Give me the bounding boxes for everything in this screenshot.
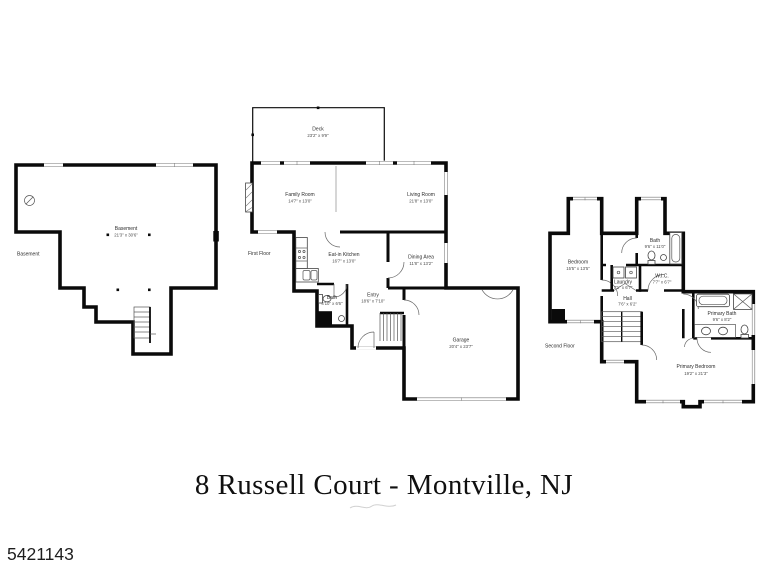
sump-pump-icon [25,196,35,206]
room-label-kitchen: Eat-in Kitchen [328,252,359,258]
room-dims-bedroom: 15'5" x 13'5" [566,266,590,271]
room-label-garage: Garage [453,338,470,344]
chimney [552,309,565,322]
room-label-family-room: Family Room [285,192,314,198]
floor-label-basement: Basement [17,252,40,258]
room-dims-primary-bedroom: 19'2" x 21'3" [684,371,708,376]
room-dims-family-room: 14'7" x 13'0" [288,199,312,204]
basement-stairs [134,307,156,343]
basement-floorplan: Basement 21'3" x 30'6" Basement [16,163,219,354]
room-dims-wic: 7'7" x 6'7" [653,280,672,285]
first-floor-floorplan: Deck 23'2" x 9'9" Family Room 14'7" x 13… [246,107,518,402]
chimney [317,311,332,326]
primary-bath-vanity [695,325,736,338]
floor-label-first-floor: First Floor [248,251,271,257]
fireplace [246,183,253,212]
room-dims-entry: 18'6" x 7'10" [361,299,385,304]
room-dims-bath2: 9'6" x 11'0" [645,244,666,249]
hall-bath-sink [661,255,667,261]
kitchen-counter [296,238,319,283]
mls-number: 5421143 [7,544,74,565]
room-label-bedroom: Bedroom [568,260,588,266]
address-title: 8 Russell Court - Montville, NJ [0,469,768,502]
primary-bath-tub [697,294,730,307]
second-floor-stairs [602,312,642,342]
washer-dryer [613,267,637,278]
powder-sink [339,316,345,322]
room-dims-basement: 21'3" x 30'6" [114,233,138,238]
room-label-deck: Deck [312,127,324,133]
room-label-dining: Dining Area [408,255,434,261]
room-dims-bath1: 4'10" x 6'6" [321,301,343,306]
primary-bath-toilet [741,325,749,338]
room-dims-dining: 11'8" x 13'2" [409,261,433,266]
floorplan-sheet: Basement 21'3" x 30'6" Basement [0,0,768,576]
primary-bath-shower [734,294,753,310]
room-dims-deck: 23'2" x 9'9" [307,133,329,138]
room-dims-laundry: 7'1" x 6'7" [614,285,633,290]
hall-bath-tub [670,233,682,265]
room-dims-kitchen: 16'7" x 13'0" [332,259,356,264]
signature-mark [350,505,396,508]
second-floor-floorplan: Bedroom 15'5" x 13'5" Bath 9'6" x 11'0" … [545,197,755,407]
room-dims-garage: 20'4" x 23'7" [449,344,473,349]
room-label-primary-bedroom: Primary Bedroom [677,364,716,370]
room-dims-hall: 7'6" x 6'2" [618,302,637,307]
room-label-basement: Basement [115,226,138,232]
room-label-living-room: Living Room [407,192,435,198]
floor-label-second-floor: Second Floor [545,344,575,350]
room-dims-living-room: 21'8" x 13'0" [409,199,433,204]
hall-bath-toilet [648,251,655,264]
room-dims-primary-bath: 9'6" x 8'2" [713,317,732,322]
first-floor-stairs [380,313,404,341]
